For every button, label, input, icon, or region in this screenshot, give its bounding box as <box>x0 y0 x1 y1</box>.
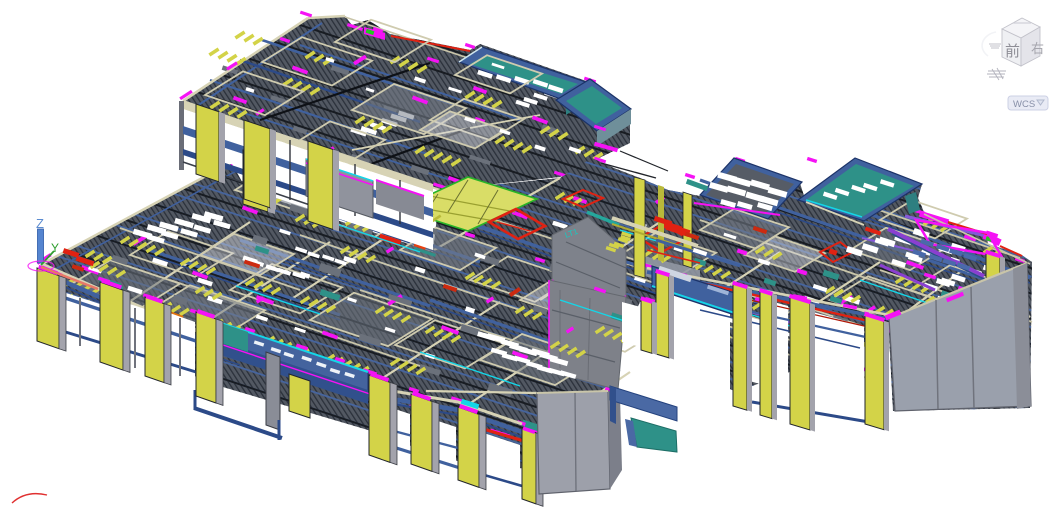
svg-text:前: 前 <box>1005 43 1020 60</box>
svg-text:WCS: WCS <box>1013 99 1035 110</box>
svg-text:右: 右 <box>1031 41 1044 56</box>
